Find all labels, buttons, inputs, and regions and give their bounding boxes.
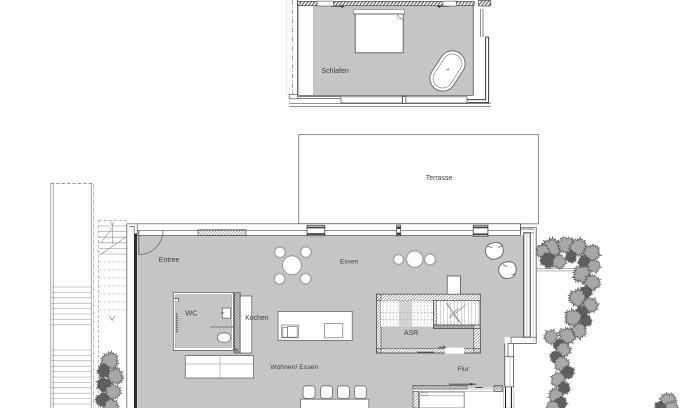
svg-text:WC: WC [185, 309, 198, 318]
svg-text:ASR: ASR [404, 330, 418, 337]
svg-text:Essen: Essen [340, 259, 359, 266]
svg-text:Entree: Entree [159, 257, 180, 264]
svg-text:Flur: Flur [458, 366, 470, 373]
svg-text:Kochen: Kochen [245, 315, 269, 322]
svg-text:Terrasse: Terrasse [426, 175, 453, 182]
svg-text:Wohnen/ Essen: Wohnen/ Essen [270, 364, 318, 371]
svg-text:Schlafen: Schlafen [322, 68, 349, 75]
